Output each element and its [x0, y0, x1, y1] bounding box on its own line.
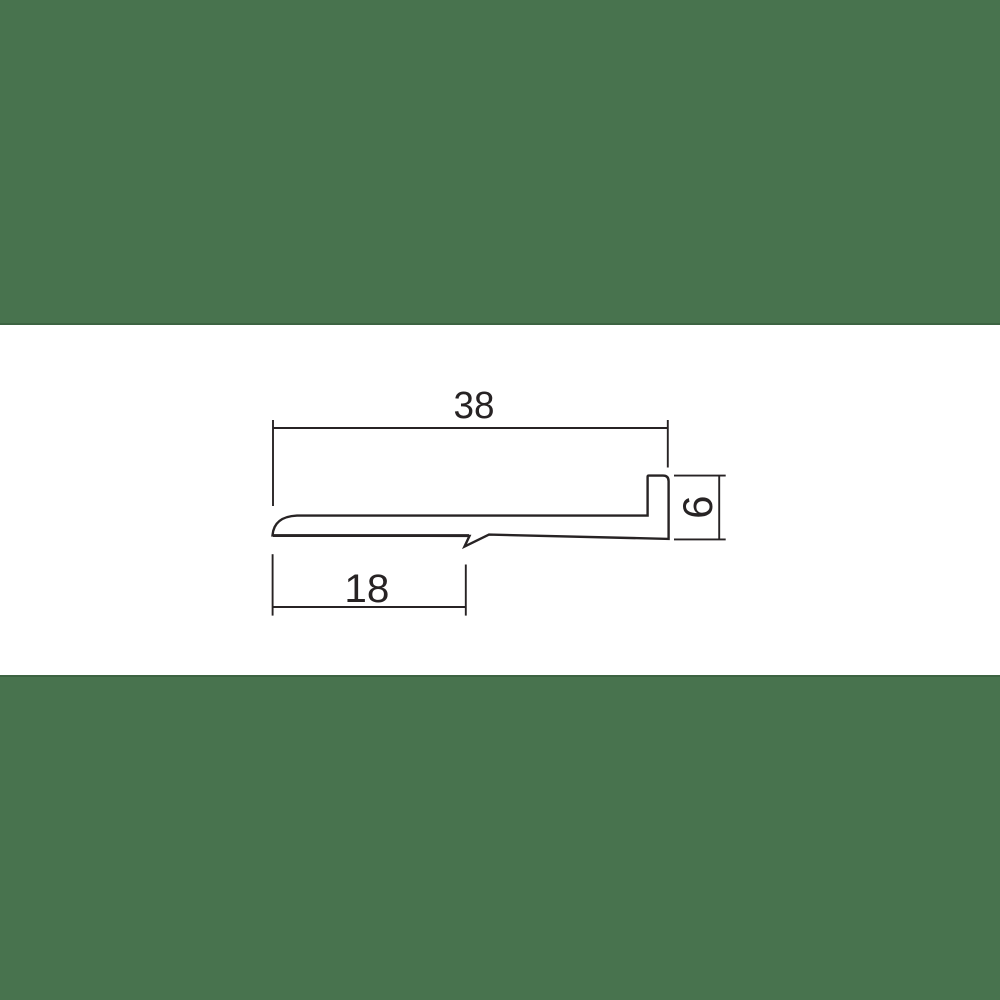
svg-text:6: 6: [674, 496, 721, 519]
svg-text:18: 18: [344, 567, 389, 611]
svg-text:38: 38: [454, 385, 495, 427]
